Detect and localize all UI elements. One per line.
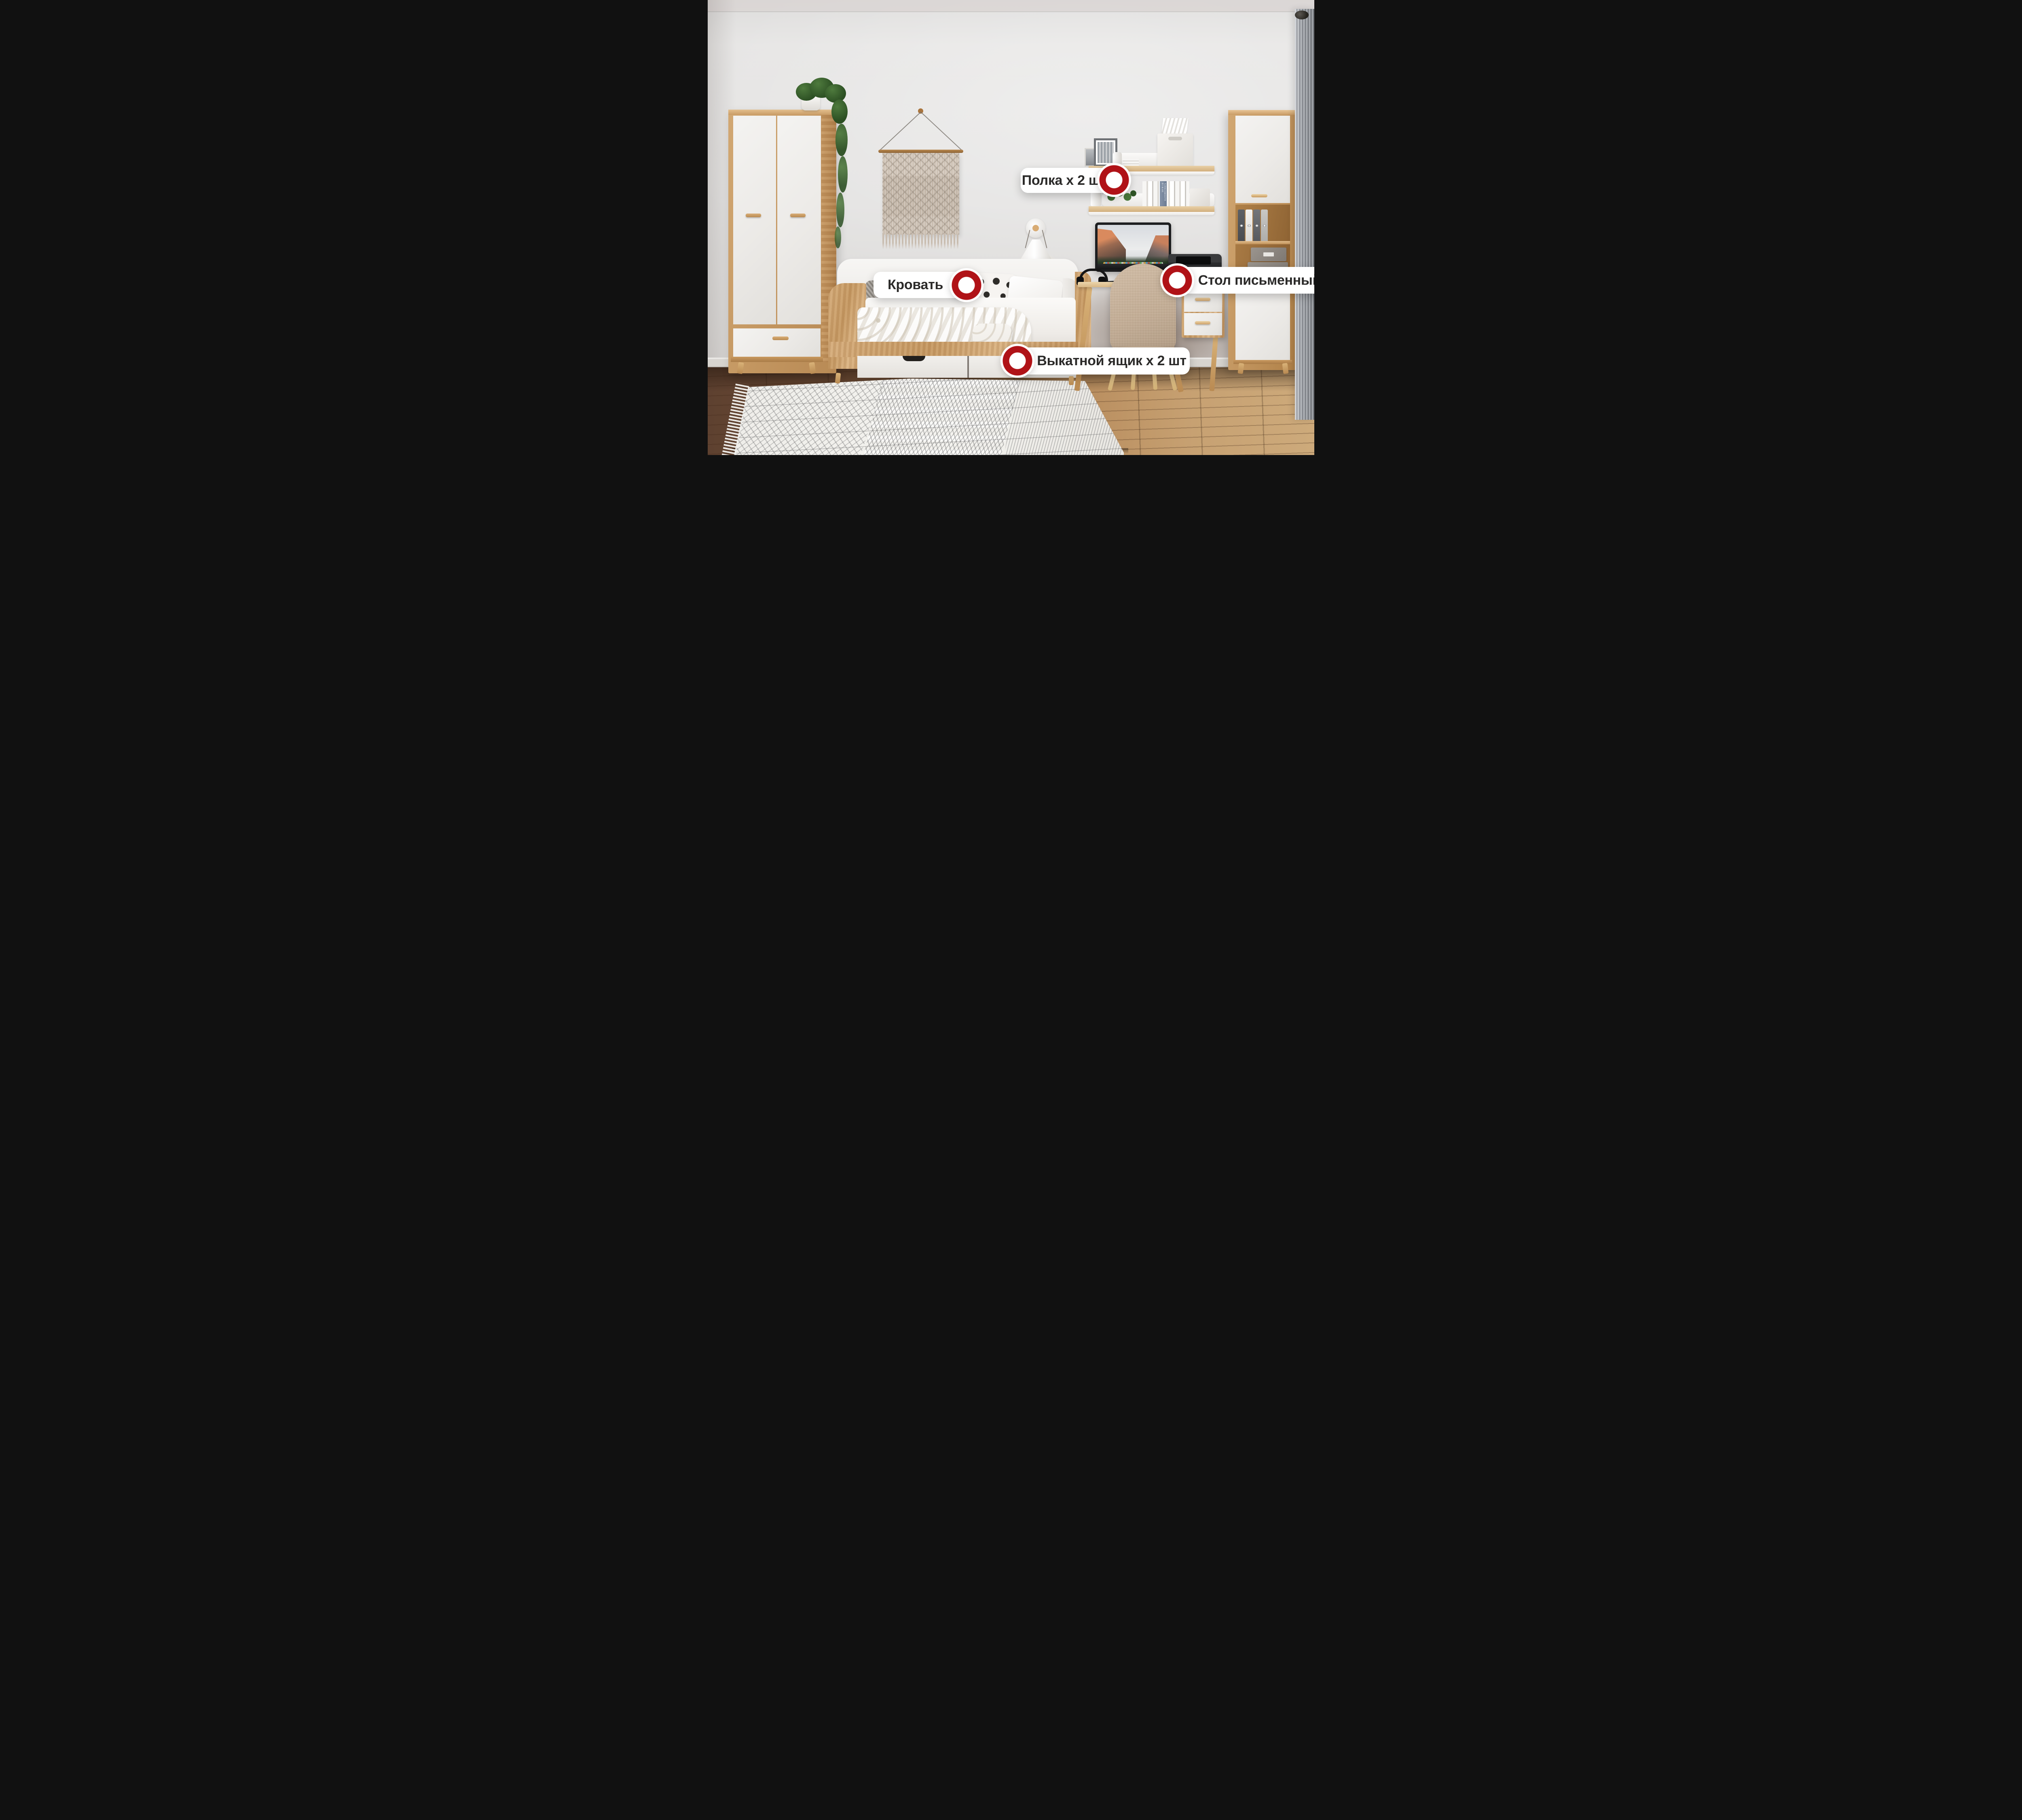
book-spine-text: TURBOSMOOTH BY M.AX [1161,183,1166,205]
annotation-label-desk[interactable]: Стол письменный [1181,267,1314,294]
annotation-marker-desk[interactable] [1160,263,1194,297]
wardrobe-door-left [733,116,776,324]
wardrobe-handle-right [790,214,806,217]
annotation-label-bed-text: Кровать [888,277,943,293]
annotation-label-shelf-text: Полка x 2 шт [1022,173,1106,188]
cabinet-open-shelf-binders [1235,205,1290,242]
plant-vine [838,156,848,193]
ceiling-molding-line [708,11,1314,12]
plant-vine [836,193,844,227]
plant-vine-top [831,99,848,124]
binder-white [1246,210,1252,242]
binder-ring [1240,224,1243,227]
bed-drawer-gap [967,356,969,378]
curtain-rod-finial [1295,11,1309,19]
cabinet-shelf-edge [1235,241,1290,244]
macrame-hanging [882,153,959,235]
macrame-rod [878,150,963,153]
wardrobe-drawer [733,328,821,357]
annotation-label-drawer[interactable]: Выкатной ящик x 2 шт [1011,347,1190,375]
box-handle-slot [1168,137,1182,140]
plant-vine [835,124,848,156]
bed-drawer-handle-notch [903,356,925,361]
annotation-marker-bed[interactable] [950,268,984,302]
cabinet-door-top [1235,116,1290,203]
binder-ring [1248,224,1251,227]
annotated-room-photo: I LOVE YOU TO THE MOON & BACK TURBOSMOOT… [708,0,1314,455]
cabinet-handle-top [1251,194,1267,197]
desk-drawer-handle-top [1195,298,1210,301]
printer-tray [1176,256,1211,265]
plant-vine-end [835,226,841,248]
rug-pattern-lines [732,376,1128,455]
shelf-book-stack [1123,159,1139,167]
annotation-label-desk-text: Стол письменный [1198,273,1314,288]
plant-leaves [825,84,846,103]
bed-leg-right [1069,376,1074,385]
desk-drawer-handle-bottom [1195,321,1210,324]
wall-lamp-knob [1032,225,1039,231]
wardrobe-drawer-handle [772,336,789,340]
annotation-marker-drawer[interactable] [1000,344,1034,378]
storage-box-white [1157,133,1193,167]
shelf-lower-lip [1089,212,1214,215]
rug [732,376,1128,455]
binder-ring [1255,224,1258,227]
curtain [1295,9,1314,420]
wardrobe-top-edge [728,110,836,115]
gray-box-upper [1251,248,1286,261]
box-label [1263,252,1274,256]
cabinet-top-edge [1228,110,1296,115]
wardrobe-bottom-rail [731,357,823,362]
wall-shelf-lower [1089,206,1214,212]
binder-ring [1263,224,1266,227]
macrame-fringe [882,234,959,249]
wardrobe-door-right [777,116,821,324]
annotation-label-drawer-text: Выкатной ящик x 2 шт [1037,353,1186,369]
ceiling-tint [708,0,1314,11]
binder-light [1261,210,1268,242]
photo-frame-large-photo [1096,140,1115,165]
wardrobe-handle-left [746,214,761,217]
storage-box-small [1190,188,1210,206]
annotation-marker-shelf[interactable] [1097,163,1131,197]
cabinet-door-bottom [1235,282,1290,360]
book-turbosmooth: TURBOSMOOTH BY M.AX [1160,181,1167,206]
binder-gray [1253,210,1260,242]
binder-dark [1238,210,1245,242]
imac-screen [1098,225,1169,267]
